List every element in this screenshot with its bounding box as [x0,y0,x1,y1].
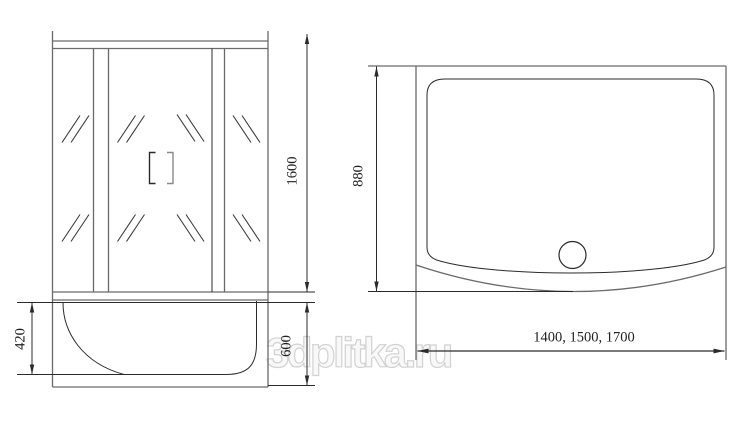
glass-hatch-icon [118,215,145,242]
dim-label-tray-height: 600 [279,335,296,357]
technical-drawing-canvas: 3dplitka.ru [0,0,747,427]
glass-hatch-icon [233,215,260,242]
shower-cabin-drawing [0,0,747,427]
drain-icon [559,242,586,269]
glass-hatch-icon [233,116,260,143]
glass-hatch-icon [62,116,89,143]
glass-hatch-icon [118,116,145,143]
dim-label-tray-inner-height: 420 [13,328,30,350]
glass-hatch-marks [62,115,260,242]
glass-hatch-icon [177,115,204,142]
dim-label-widths: 1400, 1500, 1700 [533,330,635,347]
dim-widths [418,349,725,354]
glass-hatch-icon [177,215,204,242]
tray-apron-outline [63,301,257,375]
top-view-tray-inner [427,79,714,273]
glass-hatch-icon [62,215,89,242]
dim-label-glass-height: 1600 [284,157,301,186]
dim-420 [17,303,315,375]
dim-880 [368,67,573,292]
top-view-tray-outer [368,66,726,360]
dim-label-depth: 880 [351,165,368,187]
front-view-cabin-frame [53,31,269,387]
door-handle-icon [150,153,174,184]
